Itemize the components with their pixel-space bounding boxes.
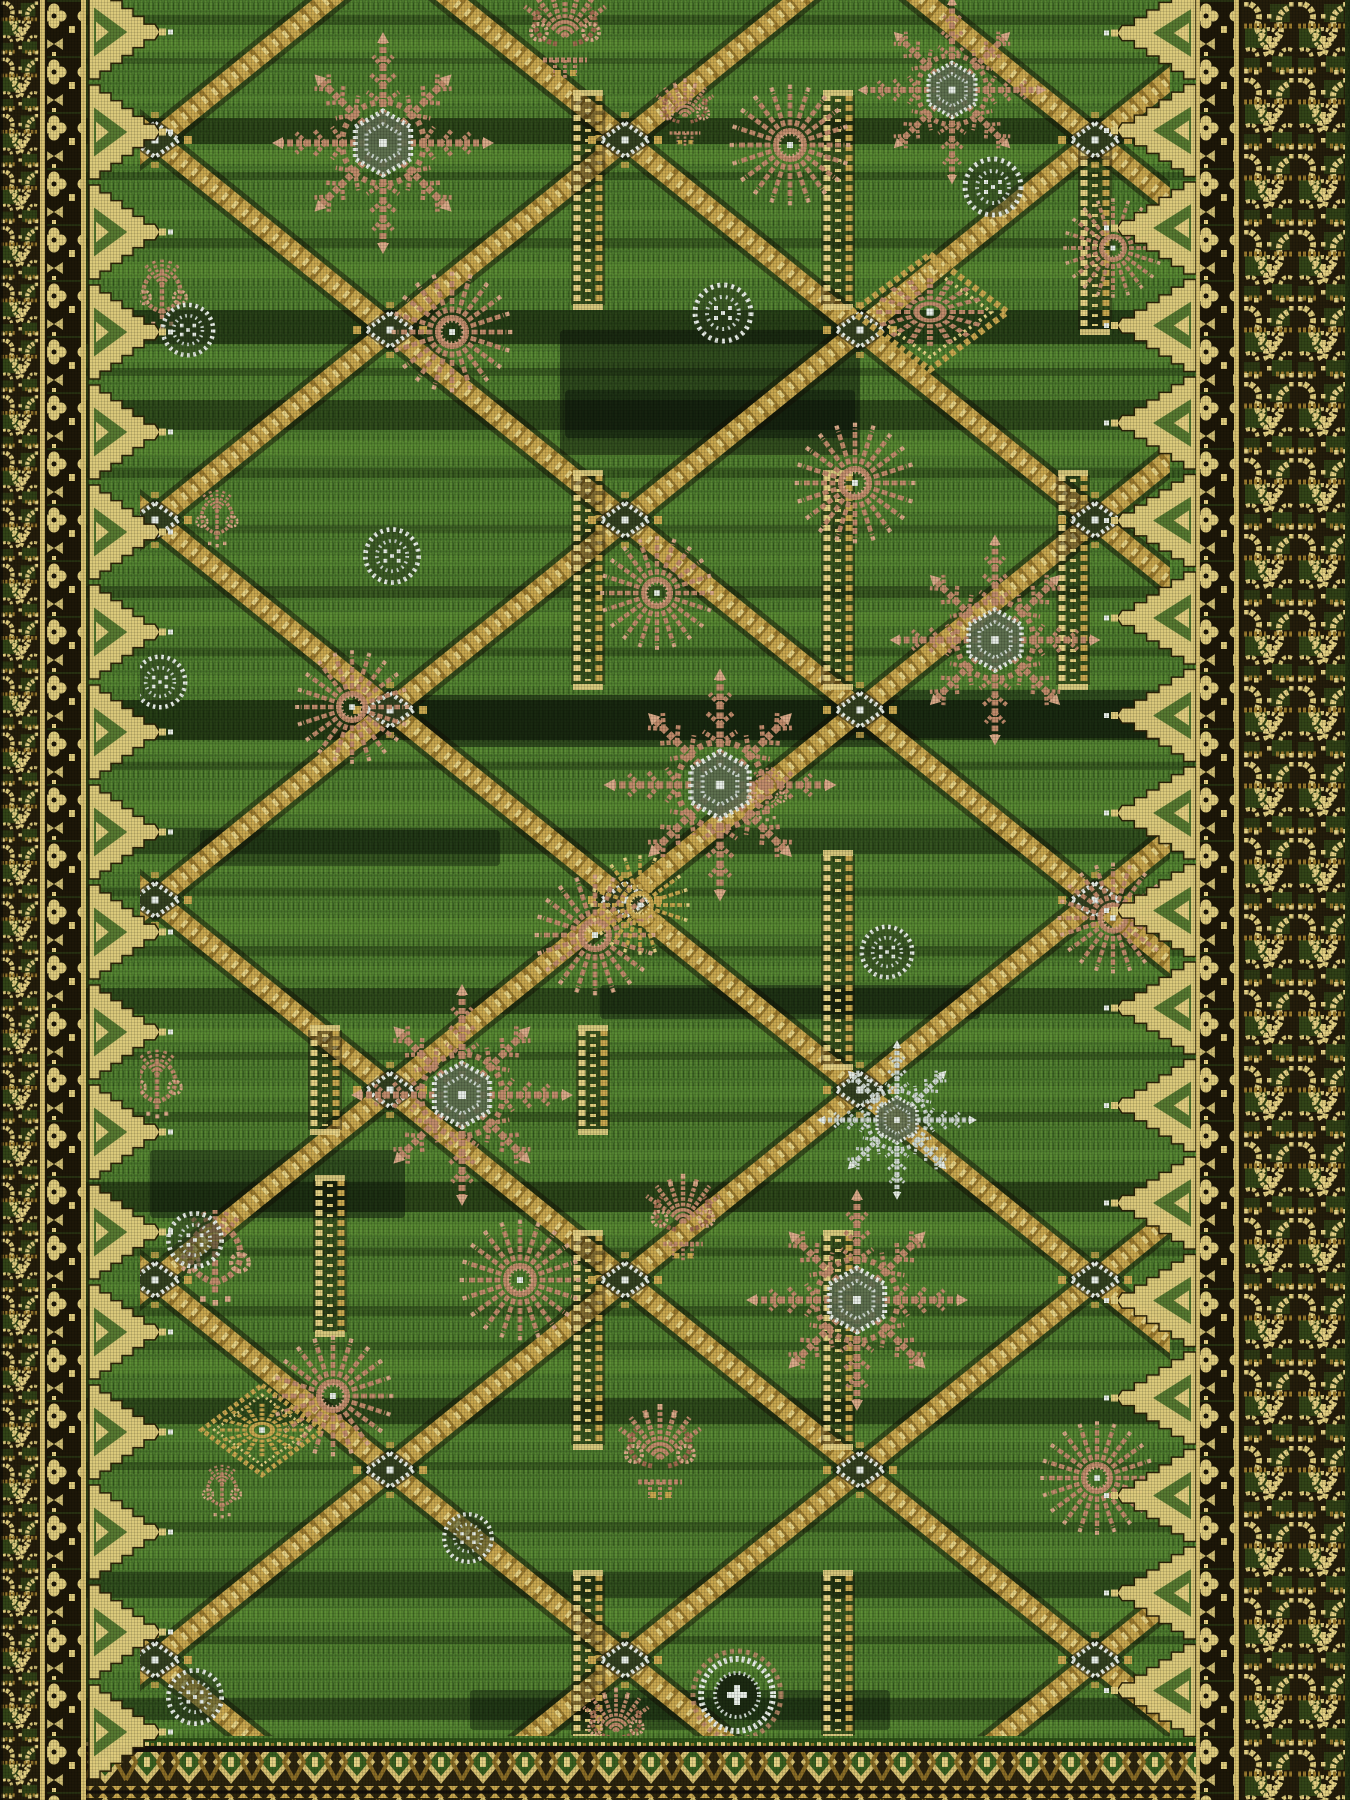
- texture-overlay: [0, 0, 1350, 1800]
- songket-textile-image: [0, 0, 1350, 1800]
- textile-photo: [0, 0, 1350, 1800]
- weave-overlay: [0, 0, 1350, 1800]
